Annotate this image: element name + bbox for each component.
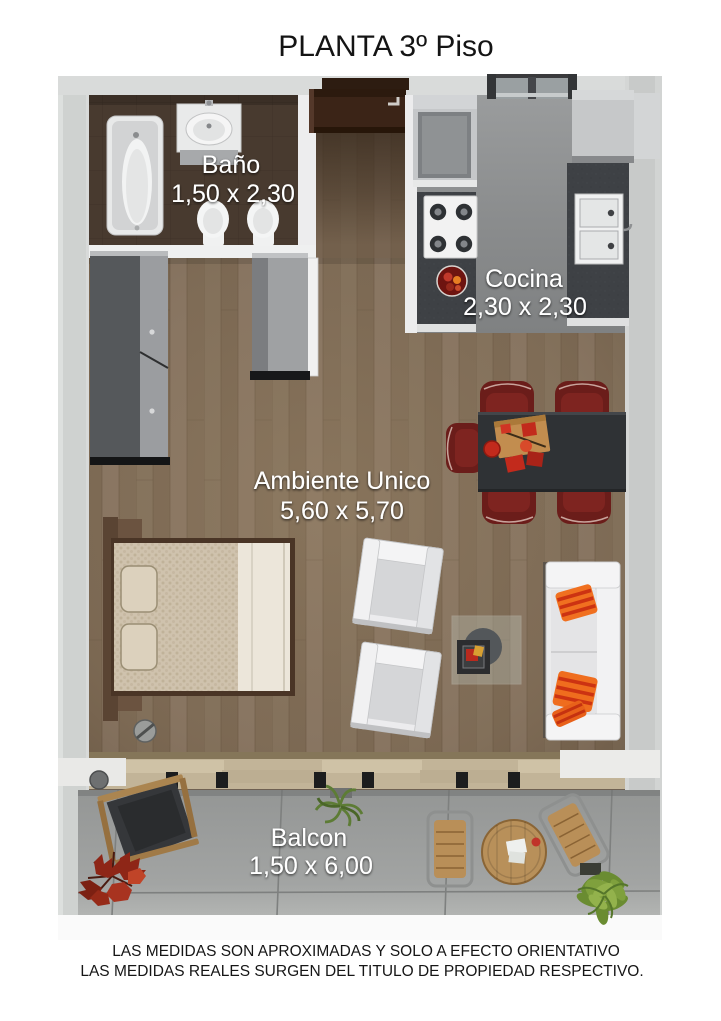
svg-text:LAS MEDIDAS SON APROXIMADAS Y: LAS MEDIDAS SON APROXIMADAS Y SOLO A EFE… xyxy=(112,943,620,960)
svg-text:1,50 x 6,00: 1,50 x 6,00 xyxy=(249,852,373,880)
svg-text:1,50 x 2,30: 1,50 x 2,30 xyxy=(171,180,295,208)
svg-text:PLANTA 3º Piso: PLANTA 3º Piso xyxy=(278,30,494,63)
svg-text:LAS MEDIDAS REALES SURGEN DEL: LAS MEDIDAS REALES SURGEN DEL TITULO DE … xyxy=(80,963,643,980)
svg-text:2,30 x 2,30: 2,30 x 2,30 xyxy=(463,293,587,321)
svg-text:Balcon: Balcon xyxy=(271,824,347,852)
svg-text:Baño: Baño xyxy=(202,151,260,179)
svg-text:Cocina: Cocina xyxy=(485,265,563,293)
svg-text:5,60 x 5,70: 5,60 x 5,70 xyxy=(280,497,404,525)
svg-text:Ambiente Unico: Ambiente Unico xyxy=(254,467,430,495)
